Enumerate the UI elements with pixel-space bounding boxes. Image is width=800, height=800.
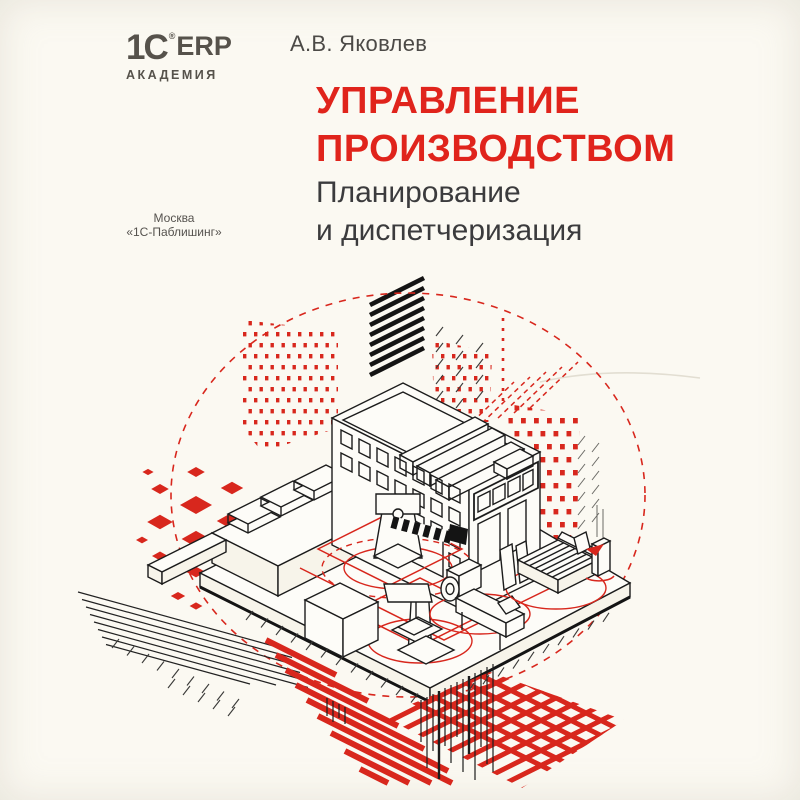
red-dot-fan-left (243, 320, 338, 452)
tick-marks-right-of-building (578, 436, 599, 529)
factory-illustration (0, 0, 800, 800)
scratch-mark (540, 373, 700, 382)
book-cover: 1С ® ERP АКАДЕМИЯ А.В. Яковлев УПРАВЛЕНИ… (0, 0, 800, 800)
